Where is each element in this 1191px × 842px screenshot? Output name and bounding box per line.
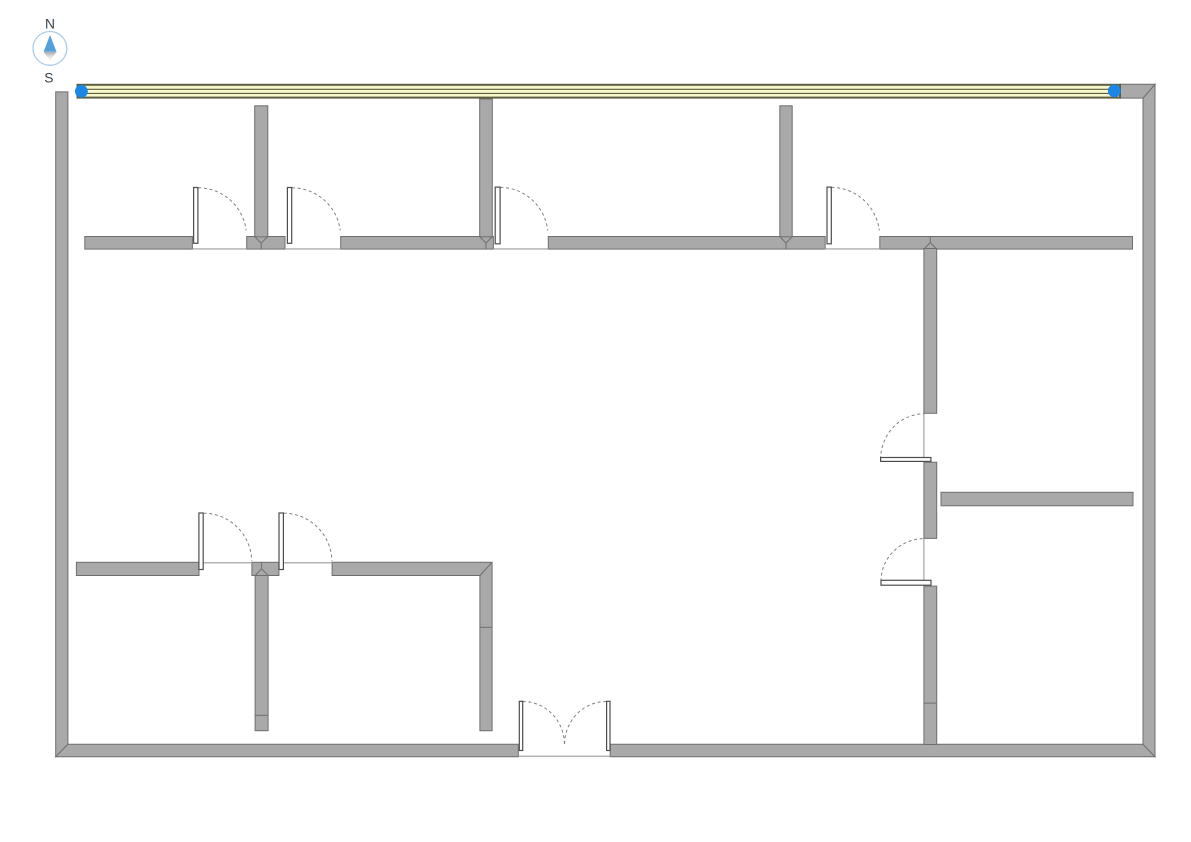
svg-text:S: S — [44, 70, 53, 85]
svg-text:N: N — [45, 17, 55, 32]
